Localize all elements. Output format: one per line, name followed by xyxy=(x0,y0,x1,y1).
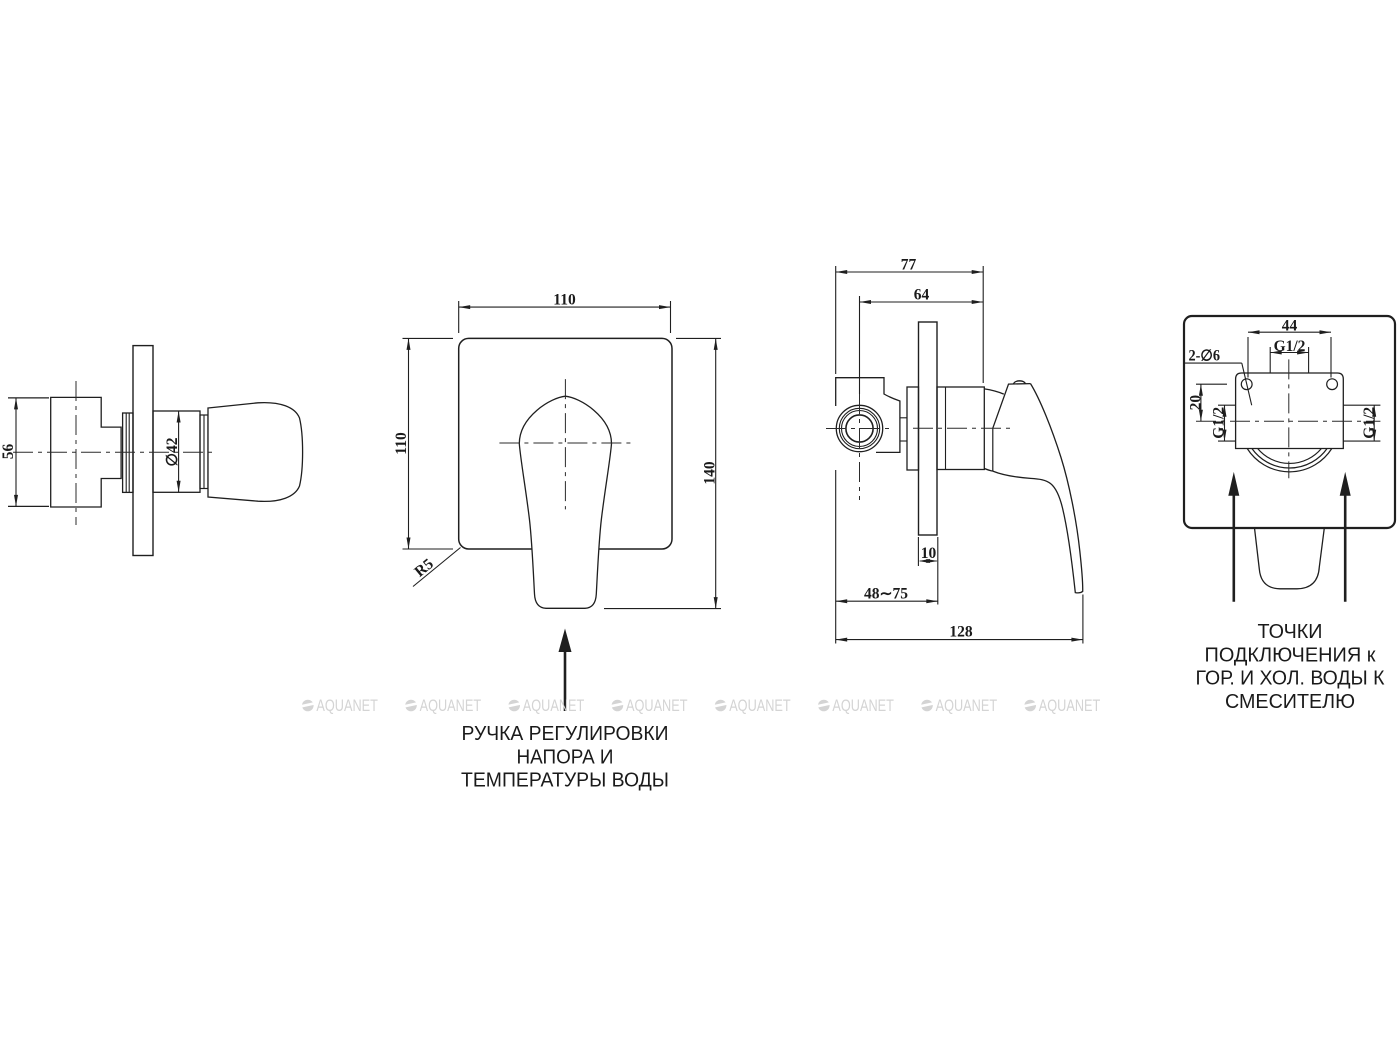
svg-text:R5: R5 xyxy=(411,555,437,580)
svg-text:СМЕСИТЕЛЮ: СМЕСИТЕЛЮ xyxy=(1225,690,1355,713)
svg-text:AQUANET: AQUANET xyxy=(316,697,378,715)
svg-text:ТОЧКИ: ТОЧКИ xyxy=(1258,620,1323,643)
svg-text:G1/2: G1/2 xyxy=(1210,407,1227,439)
svg-text:AQUANET: AQUANET xyxy=(729,697,791,715)
svg-text:44: 44 xyxy=(1282,318,1298,335)
svg-text:G1/2: G1/2 xyxy=(1274,338,1306,355)
svg-text:48∼75: 48∼75 xyxy=(864,586,908,603)
svg-text:AQUANET: AQUANET xyxy=(936,697,998,715)
svg-text:НАПОРА И: НАПОРА И xyxy=(517,745,614,768)
svg-text:AQUANET: AQUANET xyxy=(832,697,894,715)
svg-text:∅42: ∅42 xyxy=(164,437,181,466)
svg-text:140: 140 xyxy=(702,461,719,485)
svg-text:110: 110 xyxy=(553,292,576,309)
svg-text:ТЕМПЕРАТУРЫ ВОДЫ: ТЕМПЕРАТУРЫ ВОДЫ xyxy=(461,769,669,792)
svg-text:20: 20 xyxy=(1188,395,1205,411)
svg-text:56: 56 xyxy=(0,444,17,460)
svg-text:64: 64 xyxy=(914,286,930,303)
svg-text:AQUANET: AQUANET xyxy=(523,697,585,715)
svg-text:AQUANET: AQUANET xyxy=(1039,697,1101,715)
svg-text:ГОР. И ХОЛ. ВОДЫ К: ГОР. И ХОЛ. ВОДЫ К xyxy=(1196,667,1385,690)
svg-text:AQUANET: AQUANET xyxy=(626,697,688,715)
svg-text:110: 110 xyxy=(393,432,410,455)
svg-text:AQUANET: AQUANET xyxy=(420,697,482,715)
svg-text:ПОДКЛЮЧЕНИЯ к: ПОДКЛЮЧЕНИЯ к xyxy=(1205,643,1377,666)
svg-text:77: 77 xyxy=(901,256,917,273)
svg-text:2-∅6: 2-∅6 xyxy=(1189,348,1221,365)
svg-text:G1/2: G1/2 xyxy=(1361,407,1378,439)
svg-text:128: 128 xyxy=(949,624,973,641)
svg-text:10: 10 xyxy=(921,545,937,562)
svg-text:РУЧКА РЕГУЛИРОВКИ: РУЧКА РЕГУЛИРОВКИ xyxy=(462,722,669,745)
